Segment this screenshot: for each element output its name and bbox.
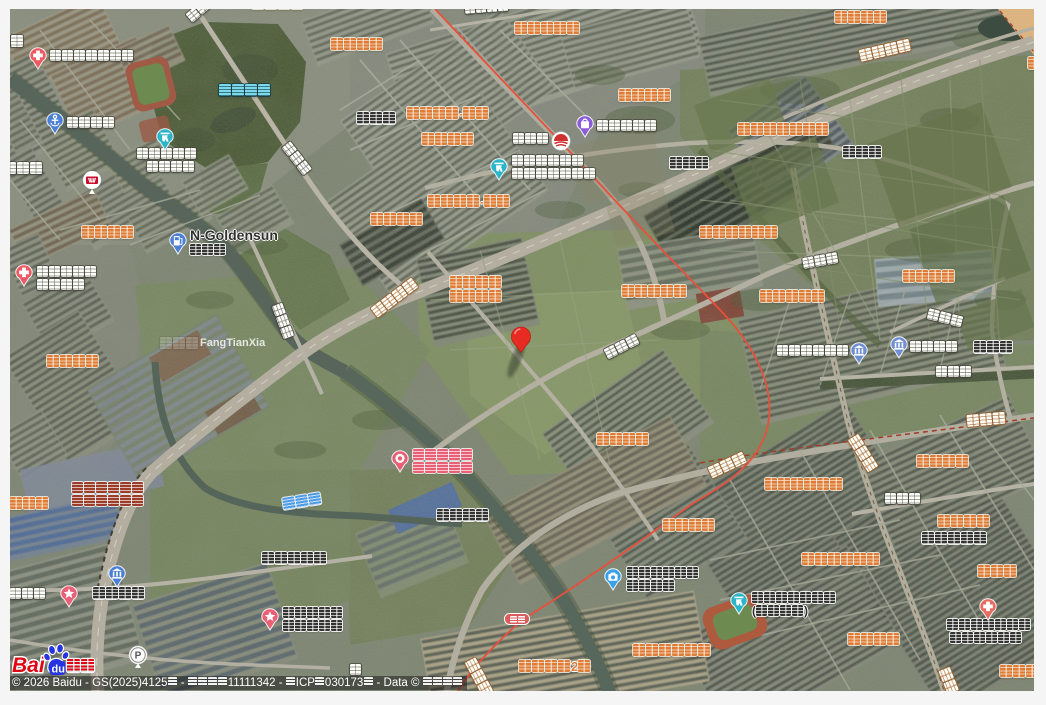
svg-text:du: du [52, 664, 65, 676]
svg-text:P: P [135, 651, 142, 662]
svg-text:Bai: Bai [12, 654, 46, 677]
